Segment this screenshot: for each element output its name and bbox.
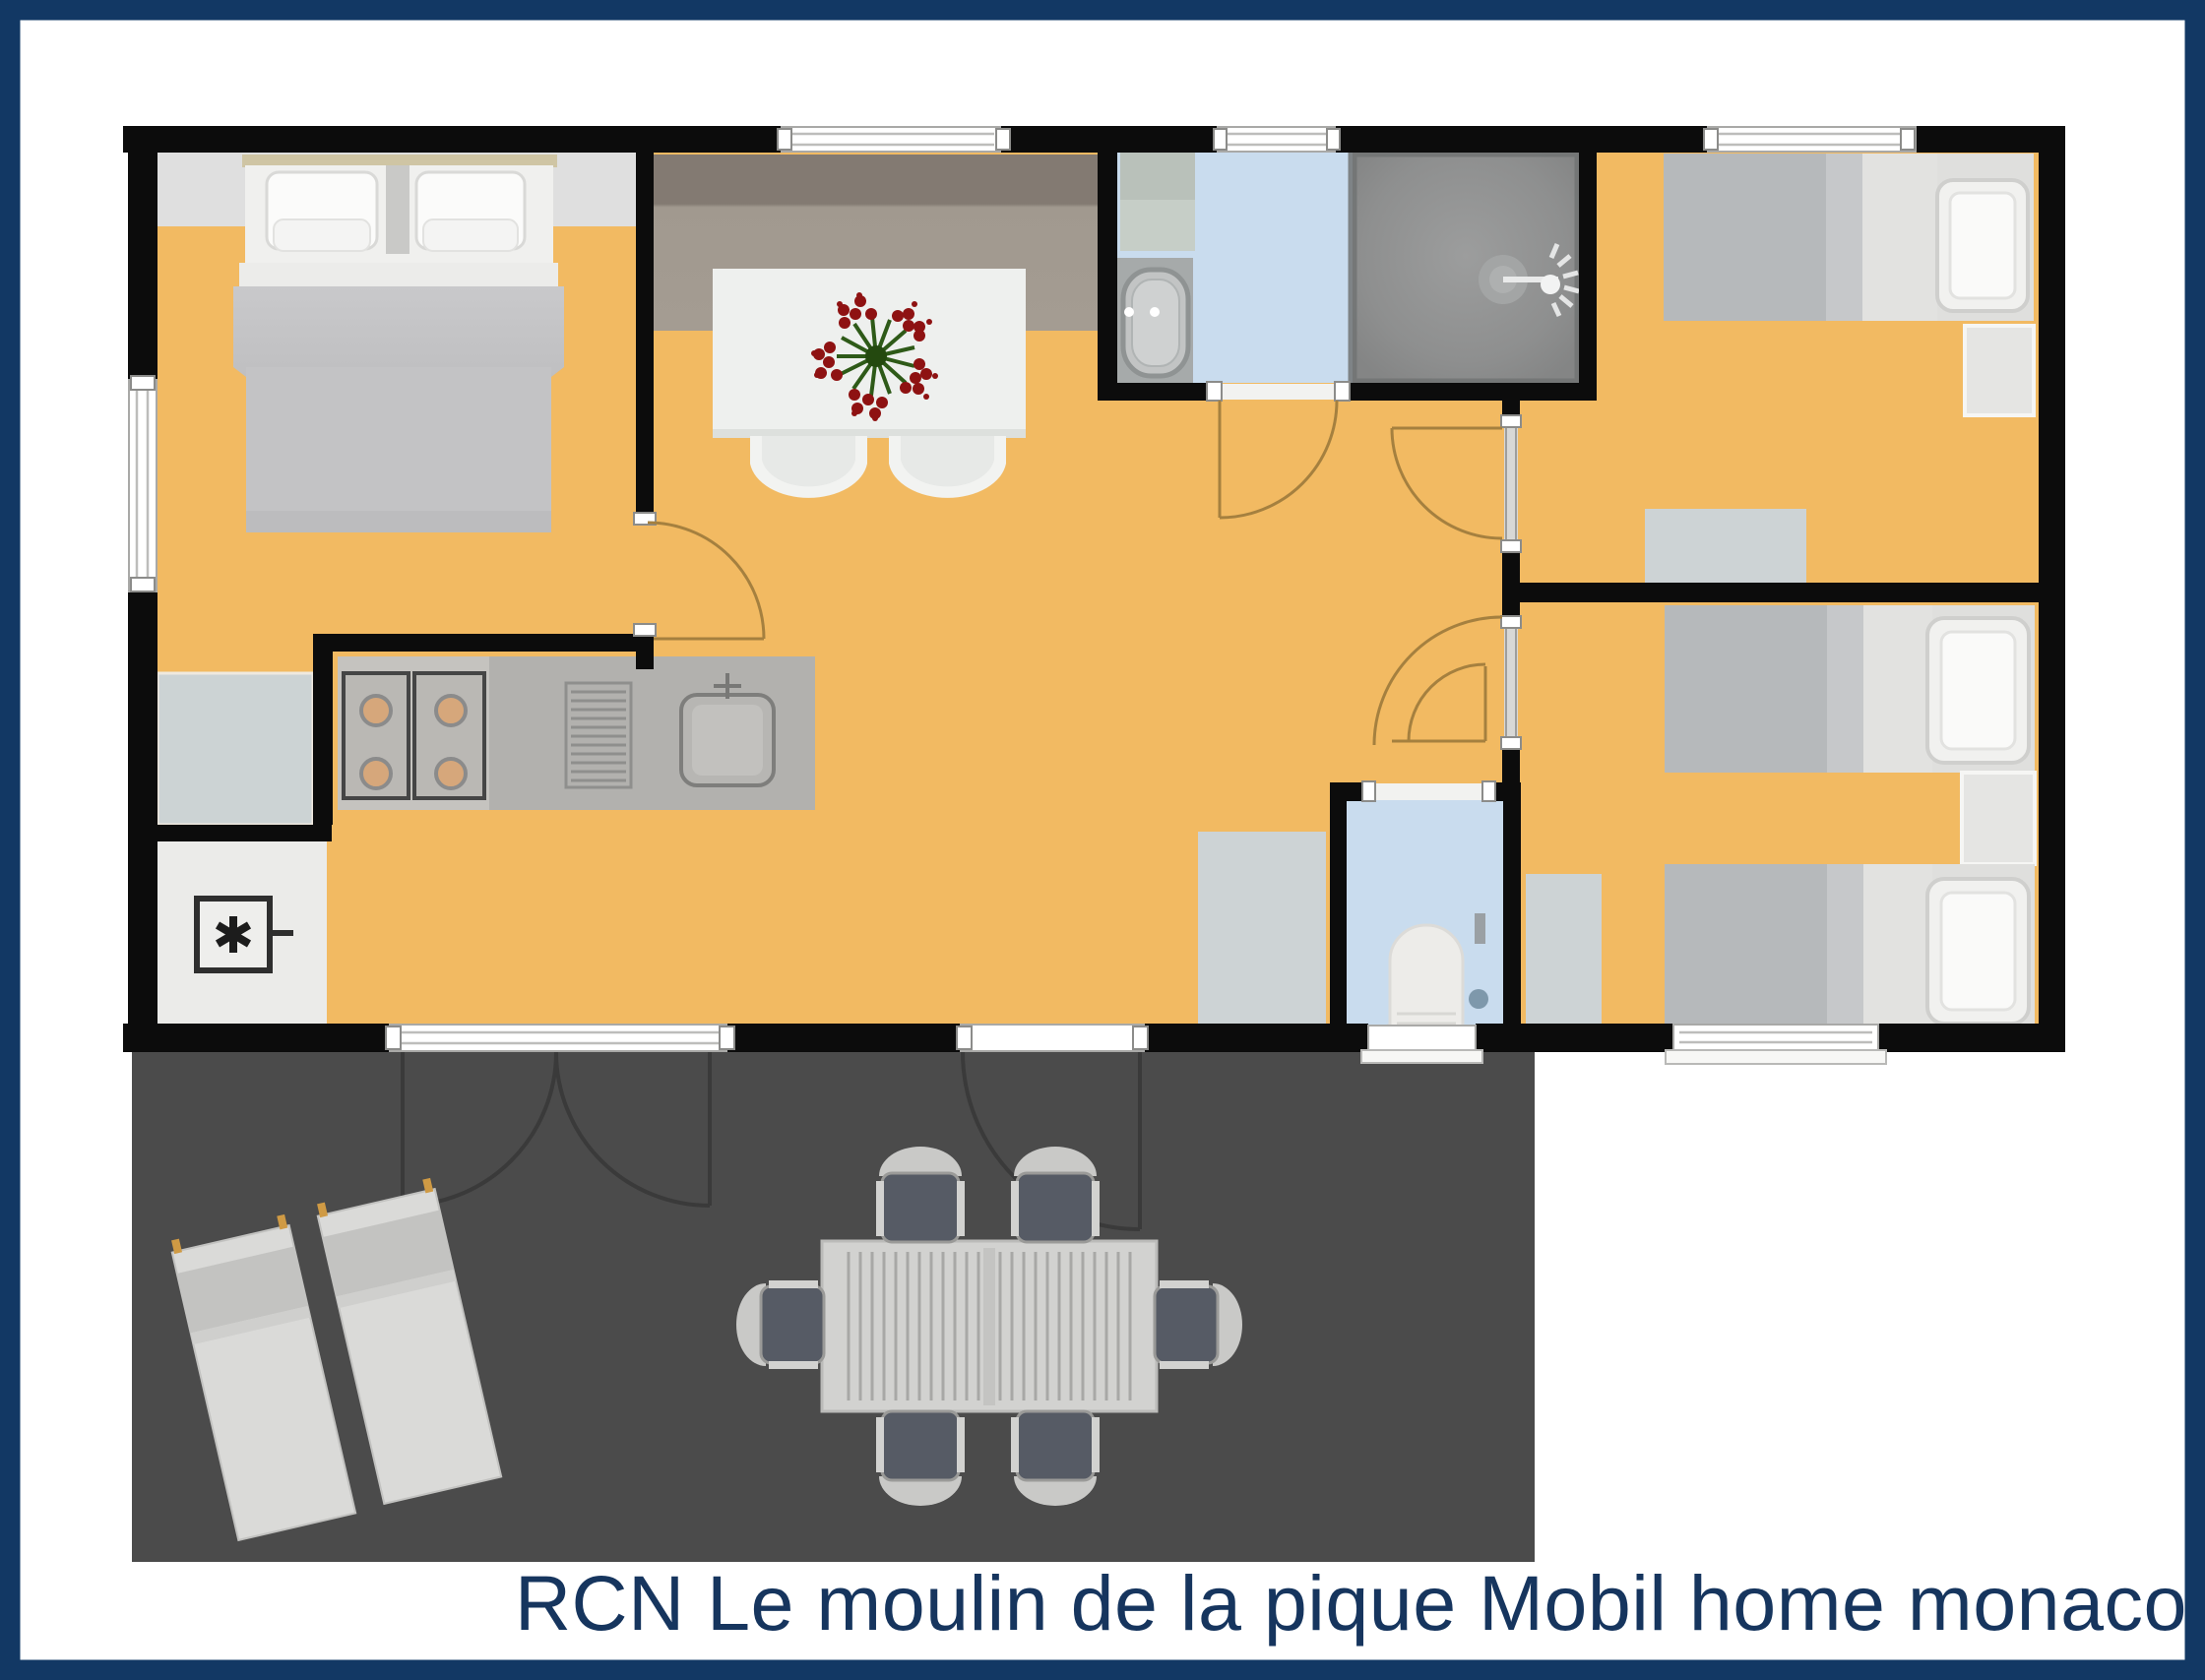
svg-text:RCN Le moulin de la pique Mobi: RCN Le moulin de la pique Mobil home mon… (515, 1559, 2187, 1647)
